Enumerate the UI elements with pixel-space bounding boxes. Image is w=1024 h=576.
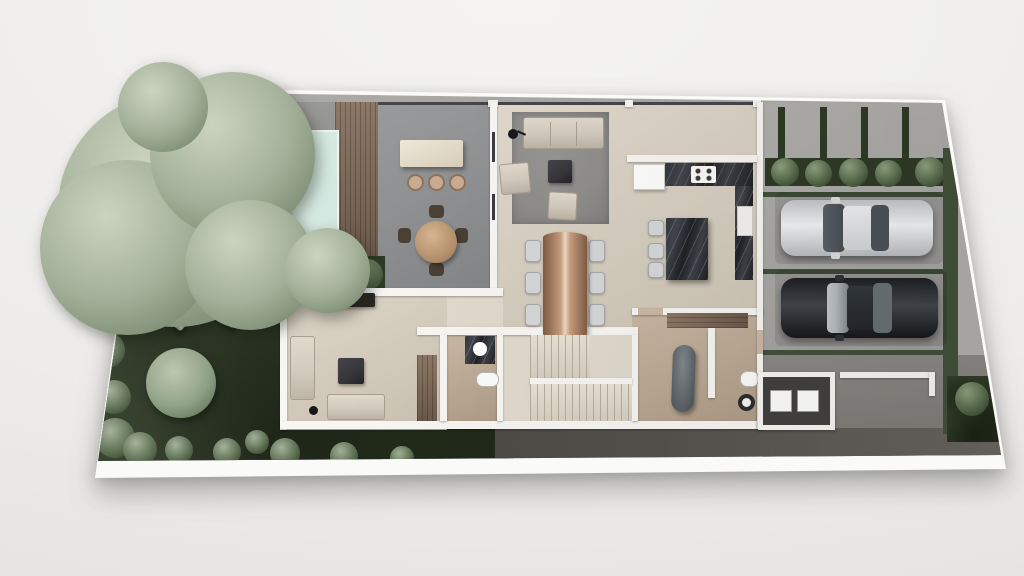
car-silver bbox=[781, 200, 933, 256]
door-gap bbox=[638, 308, 663, 315]
outdoor-chair bbox=[429, 205, 444, 218]
stair-flight-lower bbox=[530, 384, 632, 421]
dryer bbox=[797, 390, 819, 412]
shrub bbox=[390, 446, 414, 470]
shrub bbox=[330, 442, 358, 470]
plot-slab bbox=[95, 88, 1011, 482]
sofa-seam bbox=[576, 122, 577, 146]
hedge-bush bbox=[297, 259, 327, 289]
outdoor-round-table bbox=[415, 221, 457, 263]
shrub bbox=[95, 288, 127, 320]
island-stool bbox=[648, 243, 664, 259]
media-sofa-left bbox=[290, 336, 315, 400]
washer bbox=[770, 390, 792, 412]
bar-island bbox=[400, 140, 463, 167]
wall-media-west bbox=[280, 292, 287, 430]
utility-room bbox=[758, 372, 835, 430]
wall-hall-south bbox=[417, 327, 638, 335]
shrub bbox=[270, 438, 300, 468]
kitchen-island bbox=[666, 218, 708, 280]
armchair bbox=[547, 191, 577, 220]
stair-landing-floor bbox=[590, 335, 632, 378]
bar-stool bbox=[407, 174, 424, 191]
wall-stair-east bbox=[632, 335, 638, 421]
shrub bbox=[213, 438, 241, 466]
car-mirror bbox=[831, 253, 840, 259]
door-gap bbox=[757, 330, 763, 354]
car-mirror bbox=[831, 197, 840, 203]
media-console bbox=[330, 293, 375, 307]
wall-kitchen-north bbox=[627, 155, 757, 162]
media-floor-lamp bbox=[309, 406, 318, 415]
stair-flight-upper bbox=[530, 335, 590, 378]
pool-step-line bbox=[281, 132, 283, 235]
closet-door bbox=[417, 355, 437, 421]
corner-bush bbox=[955, 382, 989, 416]
wall-bath2-partition bbox=[708, 328, 715, 398]
shrub bbox=[97, 380, 131, 414]
hedge-bush bbox=[352, 259, 383, 290]
dining-chair bbox=[589, 304, 605, 326]
garage-bush bbox=[805, 160, 832, 187]
sliding-door bbox=[492, 194, 495, 220]
sliding-door bbox=[492, 132, 495, 162]
wall-closet-divider bbox=[440, 335, 447, 421]
toilet bbox=[476, 372, 499, 387]
shrub bbox=[165, 436, 193, 464]
hedge-bar bbox=[902, 107, 909, 161]
bar-stool bbox=[449, 174, 466, 191]
car-windshield bbox=[823, 204, 845, 252]
island-stool bbox=[648, 220, 664, 236]
outdoor-chair bbox=[398, 228, 411, 243]
driveway-dark-strip bbox=[495, 428, 1007, 462]
media-sofa-bottom bbox=[327, 394, 385, 420]
island-stool bbox=[648, 262, 664, 278]
glazing-north bbox=[378, 102, 763, 105]
floor-plan-scene bbox=[0, 0, 1024, 576]
grass-line bbox=[763, 350, 958, 355]
coffee-table bbox=[548, 160, 572, 183]
car-mirror bbox=[835, 275, 844, 281]
wall-yard-notch-v bbox=[929, 372, 935, 396]
stove bbox=[691, 166, 716, 183]
hedge-bar bbox=[861, 107, 868, 161]
sofa bbox=[523, 117, 604, 149]
toilet bbox=[740, 371, 759, 387]
wall-yard-notch bbox=[840, 372, 935, 378]
armchair bbox=[499, 162, 532, 195]
car-mirror bbox=[835, 335, 844, 341]
garage-bush bbox=[839, 158, 868, 187]
wall-south bbox=[280, 421, 763, 429]
shrub bbox=[123, 432, 157, 466]
hedge-bar bbox=[778, 107, 785, 161]
bar-stool bbox=[428, 174, 445, 191]
sofa-seam bbox=[550, 122, 551, 146]
car-windshield bbox=[827, 283, 849, 333]
sink-round bbox=[742, 398, 751, 407]
round-bush bbox=[146, 348, 216, 418]
dining-chair bbox=[525, 272, 541, 294]
plot-shadow-wrap bbox=[0, 0, 1024, 576]
fridge bbox=[633, 164, 665, 190]
dining-chair bbox=[525, 304, 541, 326]
media-coffee-table bbox=[338, 358, 364, 384]
oven-stack bbox=[737, 206, 753, 236]
dining-chair bbox=[589, 272, 605, 294]
swimming-pool bbox=[183, 130, 339, 237]
outdoor-chair bbox=[429, 263, 444, 276]
shrub bbox=[245, 430, 269, 454]
shrub bbox=[89, 332, 125, 368]
freestanding-bathtub bbox=[671, 345, 696, 413]
dining-chair bbox=[525, 240, 541, 262]
pool-ledge bbox=[267, 132, 337, 235]
garage-bush bbox=[771, 158, 799, 186]
sink-round bbox=[473, 342, 487, 356]
closet-shelf bbox=[667, 313, 748, 328]
car-roof bbox=[843, 206, 873, 250]
car-dark bbox=[781, 278, 938, 338]
pool-step-line bbox=[271, 132, 273, 235]
car-roof bbox=[847, 286, 875, 330]
shrub bbox=[97, 248, 123, 274]
car-rear-glass bbox=[871, 205, 889, 251]
wall-media-north bbox=[273, 288, 503, 296]
wood-deck bbox=[335, 102, 378, 258]
hedge-bar bbox=[820, 107, 827, 161]
garage-bush bbox=[875, 160, 902, 187]
live-edge-dining-table bbox=[543, 232, 587, 340]
garage-bush bbox=[915, 157, 945, 187]
mullion bbox=[625, 100, 633, 107]
plot-content bbox=[95, 88, 1011, 482]
car-rear-glass bbox=[873, 283, 892, 333]
dining-chair bbox=[589, 240, 605, 262]
